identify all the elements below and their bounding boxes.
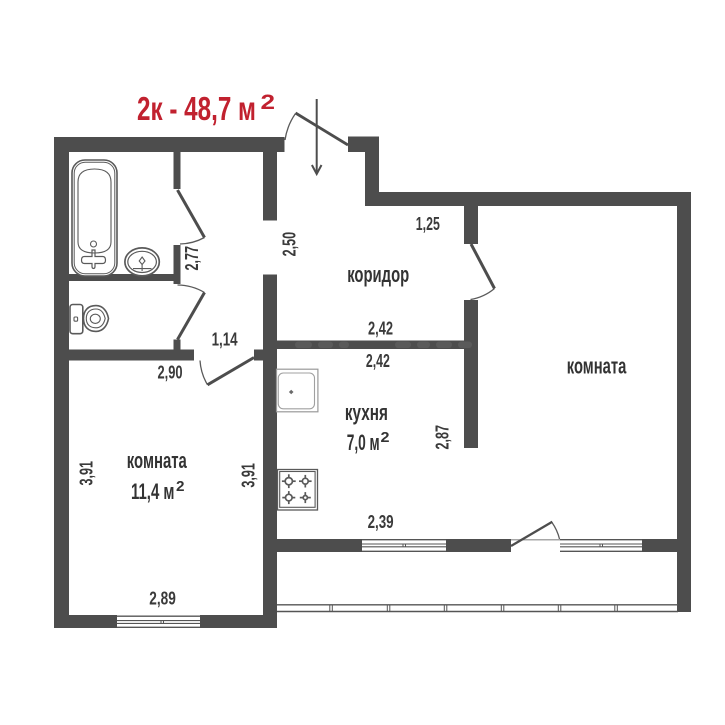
svg-text:2: 2 xyxy=(261,91,276,114)
svg-text:2,87: 2,87 xyxy=(432,425,453,450)
svg-text:7,0 м: 7,0 м xyxy=(347,430,380,455)
svg-text:1,25: 1,25 xyxy=(416,213,440,234)
svg-text:2,42: 2,42 xyxy=(368,317,393,338)
svg-text:комната: комната xyxy=(567,354,627,379)
svg-text:кухня: кухня xyxy=(345,400,388,425)
svg-text:2,42: 2,42 xyxy=(366,350,390,371)
svg-text:3,91: 3,91 xyxy=(237,463,258,488)
svg-text:2,39: 2,39 xyxy=(368,511,394,532)
svg-text:2: 2 xyxy=(381,429,390,446)
svg-text:2,50: 2,50 xyxy=(279,232,300,257)
svg-text:2,77: 2,77 xyxy=(181,246,202,271)
svg-text:11,4 м: 11,4 м xyxy=(131,479,175,504)
svg-text:комната: комната xyxy=(127,448,188,473)
svg-text:3,91: 3,91 xyxy=(76,461,97,486)
svg-text:коридор: коридор xyxy=(347,262,409,287)
svg-text:1,14: 1,14 xyxy=(212,329,238,350)
svg-text:2,89: 2,89 xyxy=(149,588,176,609)
svg-text:2,90: 2,90 xyxy=(158,362,183,383)
svg-text:2: 2 xyxy=(176,478,185,495)
svg-text:2к - 48,7 м: 2к - 48,7 м xyxy=(137,90,256,127)
